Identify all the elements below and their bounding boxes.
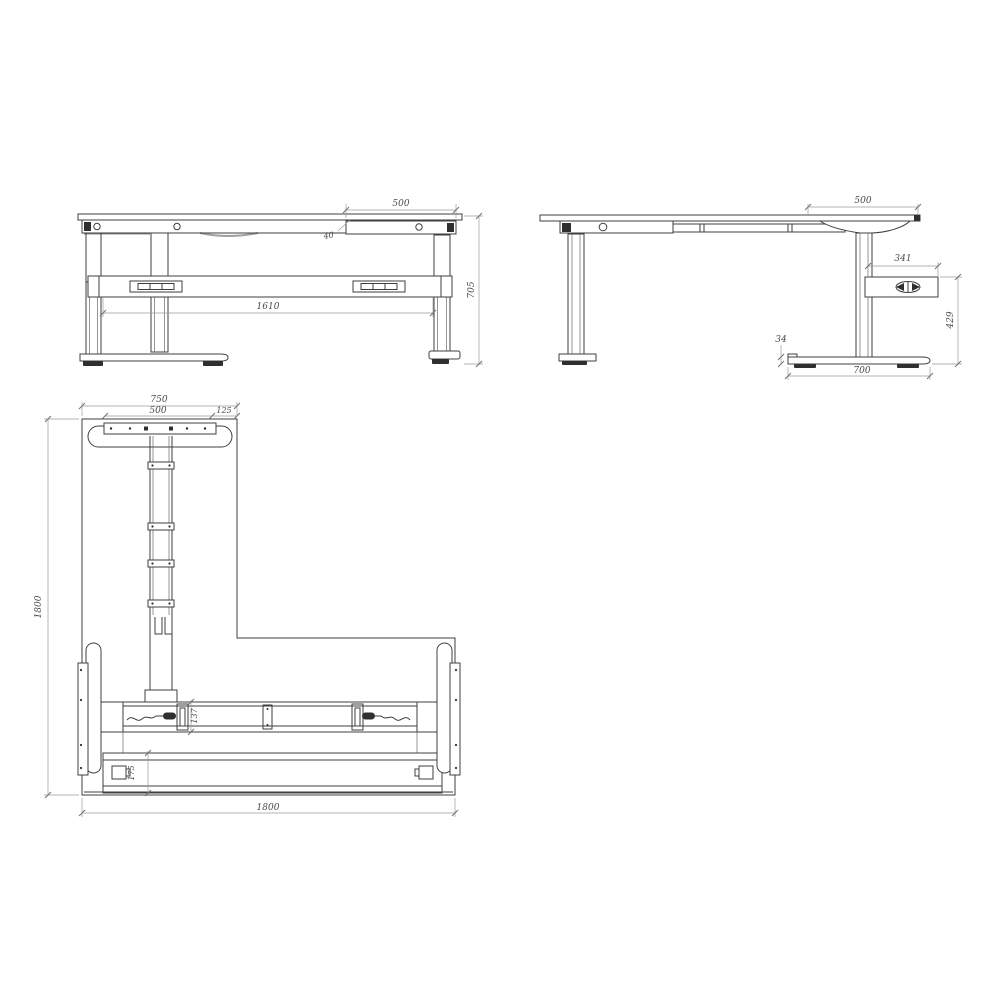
side-front-foot (559, 354, 596, 365)
height-adjust-arrows-icon (896, 282, 920, 293)
side-control-box (865, 277, 938, 297)
dim-side-foot-thickness-34: 34 (775, 335, 787, 367)
dim-label-plan-125: 125 (216, 406, 231, 415)
dim-label-front-705: 705 (467, 281, 477, 298)
side-foot-glide (562, 361, 587, 365)
plan-column-bracket (148, 523, 174, 530)
dim-plan-beam-depth-137: 137 (188, 699, 199, 735)
front-foot-glide (83, 361, 103, 366)
plan-column-bracket (148, 462, 174, 469)
side-desktop-edge-cap (914, 215, 920, 221)
plan-tray-bracket-right (415, 766, 433, 779)
front-right-bracket (346, 221, 456, 234)
dim-label-front-1610: 1610 (257, 302, 280, 312)
dim-label-plan-750: 750 (150, 395, 167, 405)
dim-label-side-341: 341 (894, 254, 911, 264)
plan-desktop-outline (82, 419, 455, 795)
dim-label-plan-175: 175 (127, 765, 136, 780)
dim-front-height-705: 705 (464, 213, 483, 367)
drawing-sheet: 500 40 1610 705 (0, 0, 1000, 1000)
front-desktop (78, 214, 462, 220)
dim-front-leg-span-1610: 1610 (100, 296, 436, 317)
front-foot-glide (203, 361, 223, 366)
technical-drawing-canvas: 500 40 1610 705 (0, 0, 1000, 1000)
dim-label-plan-1800-bottom: 1800 (257, 803, 280, 813)
plan-return-column (145, 436, 177, 702)
plan-column-base-plate (145, 690, 177, 702)
plan-column-slot (165, 617, 172, 634)
side-rail (673, 224, 845, 232)
side-foot-glide (794, 364, 816, 368)
plan-column-slot (155, 617, 162, 634)
dim-label-plan-137: 137 (190, 707, 199, 723)
front-view: 500 40 1610 705 (78, 199, 483, 367)
plan-main-beam (92, 702, 448, 753)
side-view: 500 341 429 34 (540, 196, 962, 380)
dim-label-front-500: 500 (392, 199, 409, 209)
dim-plan-side-offset-125: 125 (216, 406, 231, 415)
plan-view: 750 500 125 1800 (34, 395, 460, 817)
plan-column-bracket (148, 560, 174, 567)
dim-label-side-34: 34 (775, 335, 787, 345)
side-left-bracket (560, 221, 673, 233)
front-crossbar (88, 276, 452, 297)
dim-label-plan-500: 500 (149, 406, 166, 416)
plan-column-bracket (148, 600, 174, 607)
front-rail-end-block (84, 222, 91, 231)
dim-side-foot-length-700: 700 (785, 366, 933, 380)
dim-plan-tray-depth-175: 175 (127, 750, 151, 796)
power-cable-right (362, 713, 410, 721)
dim-label-side-700: 700 (853, 366, 870, 376)
dim-plan-width-1800: 1800 (79, 798, 458, 817)
dim-side-overhang-500: 500 (805, 196, 921, 215)
plan-left-foot (78, 643, 101, 775)
dim-label-side-429: 429 (946, 311, 956, 329)
side-foot-glide (897, 364, 919, 368)
side-desktop (540, 215, 920, 221)
plan-cable-tray (103, 753, 442, 793)
side-front-leg (568, 234, 584, 354)
plan-left-leg-plate (78, 663, 88, 775)
cable-plug (362, 713, 375, 720)
front-right-foot (429, 351, 460, 364)
plan-return-mounting-plate (104, 423, 216, 434)
cable-plug (163, 713, 176, 720)
plan-right-foot (437, 643, 460, 775)
front-return-foot (80, 354, 228, 366)
front-foot-glide (432, 359, 449, 364)
plan-right-leg-plate (450, 663, 460, 775)
front-left-rail (82, 220, 390, 233)
dim-plan-depth-1800: 1800 (34, 416, 79, 798)
dim-label-front-40: 40 (322, 230, 334, 240)
dim-side-box-length-341: 341 (865, 254, 941, 277)
front-bracket-end-block (447, 223, 454, 232)
power-cable-left (127, 713, 176, 721)
side-bracket-end-block (562, 223, 571, 232)
plan-beam-center-connector (263, 705, 272, 729)
dim-label-plan-1800-left: 1800 (34, 595, 44, 618)
dim-label-side-500: 500 (854, 196, 871, 206)
